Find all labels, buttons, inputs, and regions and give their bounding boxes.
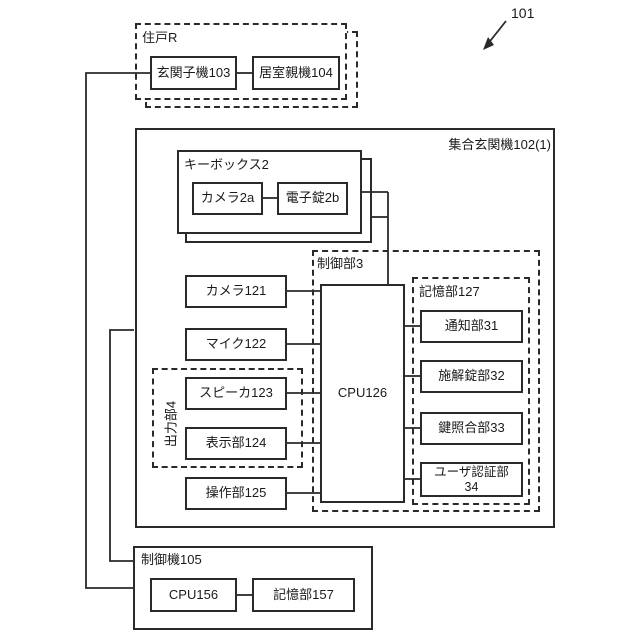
dwelling-unit-r-label: 住戸R xyxy=(142,27,177,46)
display-124-box: 表示部124 xyxy=(185,427,287,460)
memory-unit-label: 記憶部127 xyxy=(419,281,480,300)
keybox-lock-2b-box: 電子錠2b xyxy=(277,182,348,215)
lock-ctrl-32-box: 施解錠部32 xyxy=(420,360,523,393)
mic-122-box: マイク122 xyxy=(185,328,287,361)
keybox-camera-2a-box: カメラ2a xyxy=(192,182,263,215)
cpu-126-box: CPU126 xyxy=(320,284,405,503)
user-auth-34-box: ユーザ認証部 34 xyxy=(420,462,523,497)
keybox-label: キーボックス2 xyxy=(184,154,269,173)
cpu-156-box: CPU156 xyxy=(150,578,237,612)
figure-ref-number: 101 xyxy=(511,5,534,21)
entrance-station-label: 集合玄関機102(1) xyxy=(448,134,551,153)
door-unit-103-box: 玄関子機103 xyxy=(150,56,237,90)
key-match-33-box: 鍵照合部33 xyxy=(420,412,523,445)
controller-105-label: 制御機105 xyxy=(141,549,202,568)
control-unit-label: 制御部3 xyxy=(317,253,363,272)
speaker-123-box: スピーカ123 xyxy=(185,377,287,410)
notify-31-box: 通知部31 xyxy=(420,310,523,343)
camera-121-box: カメラ121 xyxy=(185,275,287,308)
wire-entrance-controller xyxy=(110,330,134,561)
patent-block-diagram: 101 住戸R 集合玄関機102(1) キーボックス2 出力部4 制御部3 記憶… xyxy=(0,0,640,640)
operation-125-box: 操作部125 xyxy=(185,477,287,510)
room-unit-104-box: 居室親機104 xyxy=(252,56,340,90)
output-unit-label: 出力部4 xyxy=(161,401,180,447)
memory-157-box: 記憶部157 xyxy=(252,578,355,612)
